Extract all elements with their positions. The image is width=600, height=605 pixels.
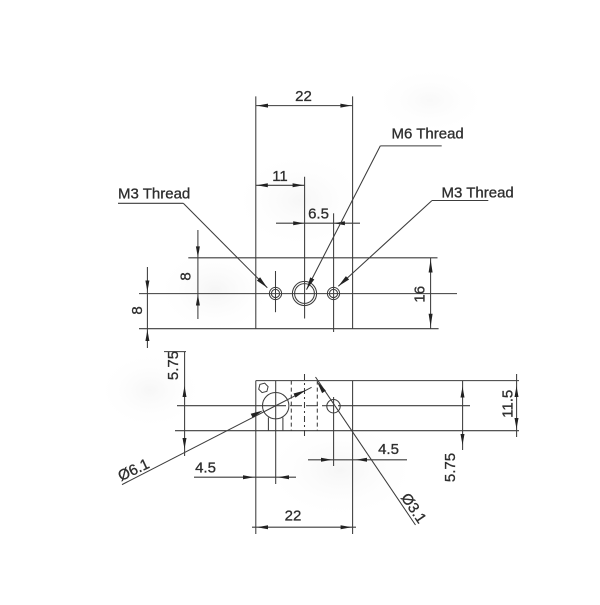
svg-text:6.5: 6.5 — [308, 206, 329, 223]
svg-text:22: 22 — [285, 508, 302, 525]
svg-text:22: 22 — [295, 88, 312, 105]
svg-text:16: 16 — [411, 286, 428, 303]
svg-text:11: 11 — [272, 168, 288, 185]
svg-text:M3 Thread: M3 Thread — [118, 186, 190, 203]
svg-text:8: 8 — [177, 272, 194, 280]
svg-text:8: 8 — [129, 306, 146, 314]
svg-text:M6 Thread: M6 Thread — [392, 126, 464, 143]
svg-text:11.5: 11.5 — [499, 390, 516, 418]
svg-text:M3 Thread: M3 Thread — [442, 185, 514, 202]
svg-text:5.75: 5.75 — [165, 351, 182, 380]
svg-text:5.75: 5.75 — [442, 453, 459, 482]
svg-text:4.5: 4.5 — [195, 460, 216, 477]
svg-text:4.5: 4.5 — [378, 441, 399, 458]
